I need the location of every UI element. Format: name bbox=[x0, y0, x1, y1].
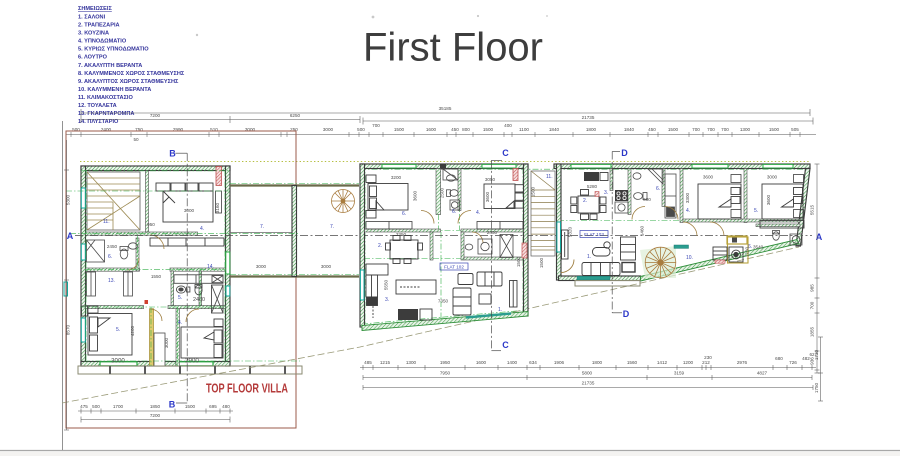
svg-text:3050: 3050 bbox=[485, 177, 496, 182]
svg-text:3350: 3350 bbox=[396, 232, 407, 237]
svg-text:6.: 6. bbox=[108, 254, 112, 260]
svg-text:7950: 7950 bbox=[440, 371, 451, 376]
svg-text:700: 700 bbox=[372, 123, 380, 128]
svg-text:600: 600 bbox=[643, 197, 651, 202]
svg-text:1500: 1500 bbox=[769, 127, 780, 132]
svg-text:1100: 1100 bbox=[519, 127, 529, 132]
svg-text:1840: 1840 bbox=[549, 127, 560, 132]
svg-text:2.: 2. bbox=[378, 243, 382, 249]
svg-text:1412: 1412 bbox=[657, 360, 668, 365]
svg-text:11. ΚΛΙΜΑΚΟΣΤΑΣΙΟ: 11. ΚΛΙΜΑΚΟΣΤΑΣΙΟ bbox=[78, 95, 133, 101]
svg-text:21735: 21735 bbox=[582, 381, 595, 386]
svg-text:6250: 6250 bbox=[290, 113, 301, 118]
svg-text:3300: 3300 bbox=[685, 192, 690, 203]
svg-text:4.: 4. bbox=[200, 226, 204, 232]
svg-text:11.: 11. bbox=[546, 174, 553, 180]
svg-text:FLAT 103: FLAT 103 bbox=[584, 232, 604, 237]
svg-text:1800: 1800 bbox=[592, 360, 603, 365]
svg-text:3000: 3000 bbox=[256, 264, 267, 269]
svg-text:3600: 3600 bbox=[703, 175, 714, 180]
svg-text:2400: 2400 bbox=[193, 297, 205, 303]
svg-text:1500: 1500 bbox=[394, 127, 405, 132]
svg-text:ΣΗΜΕΙΩΣΕΙΣ: ΣΗΜΕΙΩΣΕΙΣ bbox=[78, 6, 112, 12]
svg-text:1850: 1850 bbox=[150, 404, 161, 409]
svg-text:500: 500 bbox=[92, 404, 100, 409]
svg-text:1500: 1500 bbox=[539, 257, 544, 268]
svg-text:10.: 10. bbox=[686, 255, 693, 261]
svg-text:1700: 1700 bbox=[113, 404, 124, 409]
svg-text:35185: 35185 bbox=[439, 106, 452, 111]
svg-text:700: 700 bbox=[707, 127, 715, 132]
svg-text:6.: 6. bbox=[656, 186, 660, 192]
svg-text:1600: 1600 bbox=[426, 127, 437, 132]
svg-text:1600: 1600 bbox=[476, 360, 487, 365]
svg-text:1500: 1500 bbox=[185, 404, 196, 409]
svg-text:3.: 3. bbox=[604, 190, 608, 196]
svg-text:5.: 5. bbox=[116, 327, 120, 333]
svg-text:726: 726 bbox=[789, 360, 797, 365]
svg-text:1230: 1230 bbox=[745, 246, 750, 257]
svg-text:212: 212 bbox=[702, 360, 710, 365]
svg-text:1550: 1550 bbox=[151, 274, 162, 279]
svg-text:4.: 4. bbox=[476, 210, 480, 216]
svg-text:500: 500 bbox=[357, 127, 365, 132]
svg-text:1300: 1300 bbox=[406, 360, 417, 365]
svg-text:C: C bbox=[502, 340, 509, 350]
svg-text:1.: 1. bbox=[587, 254, 591, 260]
svg-text:400: 400 bbox=[504, 123, 512, 128]
svg-text:1500: 1500 bbox=[516, 256, 521, 267]
svg-text:8570: 8570 bbox=[66, 324, 71, 335]
svg-text:3200: 3200 bbox=[391, 175, 402, 180]
svg-text:3000: 3000 bbox=[323, 127, 334, 132]
svg-text:1750: 1750 bbox=[814, 382, 819, 393]
svg-text:505: 505 bbox=[791, 127, 799, 132]
svg-text:B: B bbox=[169, 149, 176, 159]
svg-text:13. ΓΚΑΡΝΤΑΡΟΜΠΑ: 13. ΓΚΑΡΝΤΑΡΟΜΠΑ bbox=[78, 111, 134, 117]
svg-text:1500: 1500 bbox=[668, 127, 679, 132]
svg-text:2450: 2450 bbox=[487, 230, 498, 235]
svg-text:985: 985 bbox=[810, 284, 815, 292]
svg-text:450: 450 bbox=[451, 127, 459, 132]
svg-text:5.: 5. bbox=[754, 208, 758, 214]
svg-text:TOP FLOOR VILLA: TOP FLOOR VILLA bbox=[206, 381, 288, 396]
svg-text:First Floor: First Floor bbox=[363, 26, 543, 70]
svg-text:230: 230 bbox=[704, 355, 712, 360]
svg-text:5300: 5300 bbox=[66, 194, 71, 205]
svg-text:700: 700 bbox=[721, 127, 729, 132]
svg-text:5800: 5800 bbox=[582, 371, 593, 376]
svg-text:1500: 1500 bbox=[483, 127, 494, 132]
svg-text:11.: 11. bbox=[103, 219, 110, 225]
svg-text:700: 700 bbox=[692, 127, 700, 132]
svg-text:485: 485 bbox=[364, 360, 372, 365]
svg-text:7200: 7200 bbox=[150, 113, 161, 118]
svg-text:4.: 4. bbox=[686, 208, 690, 214]
svg-text:2450: 2450 bbox=[107, 244, 118, 249]
svg-text:3600: 3600 bbox=[413, 190, 418, 201]
svg-text:1500: 1500 bbox=[531, 186, 536, 197]
svg-text:3600: 3600 bbox=[485, 191, 490, 202]
svg-text:50: 50 bbox=[133, 137, 139, 142]
svg-text:3.: 3. bbox=[385, 297, 389, 303]
svg-text:5550: 5550 bbox=[384, 279, 389, 290]
svg-text:4827: 4827 bbox=[757, 371, 768, 376]
svg-text:D: D bbox=[623, 309, 630, 319]
svg-text:3000: 3000 bbox=[767, 175, 778, 180]
svg-text:3000: 3000 bbox=[321, 264, 332, 269]
svg-text:7.: 7. bbox=[330, 224, 334, 230]
svg-text:2.: 2. bbox=[583, 198, 587, 204]
svg-text:1.: 1. bbox=[498, 307, 502, 313]
svg-text:B: B bbox=[169, 400, 176, 410]
svg-text:800: 800 bbox=[462, 127, 470, 132]
svg-text:8. ΚΑΛΥΜΜΕΝΟΣ ΧΩΡΟΣ ΣΤΑΘΜΕΥΣΗΣ: 8. ΚΑΛΥΜΜΕΝΟΣ ΧΩΡΟΣ ΣΤΑΘΜΕΥΣΗΣ bbox=[78, 71, 185, 77]
svg-text:680: 680 bbox=[775, 356, 783, 361]
svg-text:5. ΚΥΡΙΩΣ ΥΠΝΟΔΩΜΑΤΙΟ: 5. ΚΥΡΙΩΣ ΥΠΝΟΔΩΜΑΤΙΟ bbox=[78, 47, 149, 53]
svg-text:14. ΠΛΥΣΤΑΡΙΟ: 14. ΠΛΥΣΤΑΡΙΟ bbox=[78, 119, 119, 125]
svg-text:7350: 7350 bbox=[438, 299, 449, 304]
svg-text:C: C bbox=[502, 148, 509, 158]
svg-text:2. ΤΡΑΠΕΖΑΡΙΑ: 2. ΤΡΑΠΕΖΑΡΙΑ bbox=[78, 23, 120, 29]
svg-text:4. ΥΠΝΟΔΩΜΑΤΙΟ: 4. ΥΠΝΟΔΩΜΑΤΙΟ bbox=[78, 39, 127, 45]
svg-text:6.: 6. bbox=[452, 209, 456, 215]
svg-text:6.: 6. bbox=[402, 211, 406, 217]
svg-text:14.: 14. bbox=[207, 264, 214, 270]
svg-text:21735: 21735 bbox=[582, 115, 595, 120]
svg-text:1800: 1800 bbox=[586, 127, 597, 132]
svg-text:9. ΑΚΑΛΥΠΤΟΣ ΧΩΡΟΣ ΣΤΑΘΜΕΥΣΗΣ: 9. ΑΚΑΛΥΠΤΟΣ ΧΩΡΟΣ ΣΤΑΘΜΕΥΣΗΣ bbox=[78, 79, 179, 85]
svg-text:6. ΛΟΥΤΡΟ: 6. ΛΟΥΤΡΟ bbox=[78, 55, 108, 61]
svg-text:13.: 13. bbox=[108, 278, 115, 284]
svg-text:950: 950 bbox=[147, 222, 155, 227]
svg-text:7200: 7200 bbox=[150, 413, 161, 418]
svg-text:1855: 1855 bbox=[810, 326, 815, 337]
svg-text:1400: 1400 bbox=[507, 360, 518, 365]
svg-text:1730: 1730 bbox=[814, 349, 819, 360]
svg-text:3. ΚΟΥΖΙΝΑ: 3. ΚΟΥΖΙΝΑ bbox=[78, 31, 109, 37]
svg-text:3000: 3000 bbox=[184, 208, 195, 213]
svg-text:1. ΣΑΛΟΝΙ: 1. ΣΑΛΟΝΙ bbox=[78, 15, 106, 21]
svg-text:10. ΚΑΛΥΜΜΕΝΗ ΒΕΡΑΝΤΑ: 10. ΚΑΛΥΜΜΕΝΗ ΒΕΡΑΝΤΑ bbox=[78, 87, 151, 93]
svg-text:FLAT 102: FLAT 102 bbox=[444, 265, 464, 270]
svg-text:A: A bbox=[67, 231, 74, 241]
svg-text:5.: 5. bbox=[178, 295, 182, 301]
svg-text:1200: 1200 bbox=[683, 360, 694, 365]
svg-text:4200: 4200 bbox=[130, 325, 135, 336]
svg-text:7.: 7. bbox=[260, 224, 264, 230]
svg-text:5280: 5280 bbox=[587, 184, 598, 189]
svg-text:D: D bbox=[621, 148, 628, 158]
svg-text:450: 450 bbox=[648, 127, 656, 132]
svg-text:700: 700 bbox=[810, 301, 815, 309]
svg-text:1215: 1215 bbox=[380, 360, 391, 365]
svg-text:3000: 3000 bbox=[164, 337, 169, 348]
svg-text:12. ΤΟΥΑΛΕΤΑ: 12. ΤΟΥΑΛΕΤΑ bbox=[78, 103, 117, 109]
svg-text:480: 480 bbox=[222, 404, 230, 409]
svg-text:5515: 5515 bbox=[810, 204, 815, 215]
svg-text:4.: 4. bbox=[178, 320, 182, 326]
svg-text:3600: 3600 bbox=[766, 194, 771, 205]
svg-text:7. ΑΚΑΛΥΠΤΗ ΒΕΡΑΝΤΑ: 7. ΑΚΑΛΥΠΤΗ ΒΕΡΑΝΤΑ bbox=[78, 63, 142, 69]
svg-text:1840: 1840 bbox=[624, 127, 635, 132]
svg-text:1300: 1300 bbox=[740, 127, 751, 132]
svg-text:1460: 1460 bbox=[640, 225, 645, 236]
svg-text:2976: 2976 bbox=[737, 360, 748, 365]
svg-text:1906: 1906 bbox=[554, 360, 565, 365]
svg-text:1560: 1560 bbox=[627, 360, 638, 365]
svg-text:3159: 3159 bbox=[674, 371, 685, 376]
svg-text:3160: 3160 bbox=[215, 202, 220, 213]
svg-text:1950: 1950 bbox=[440, 360, 451, 365]
svg-text:475: 475 bbox=[80, 404, 88, 409]
svg-text:695: 695 bbox=[209, 404, 217, 409]
svg-text:634: 634 bbox=[529, 360, 537, 365]
svg-text:2500: 2500 bbox=[440, 187, 445, 198]
svg-text:3540: 3540 bbox=[753, 245, 764, 250]
